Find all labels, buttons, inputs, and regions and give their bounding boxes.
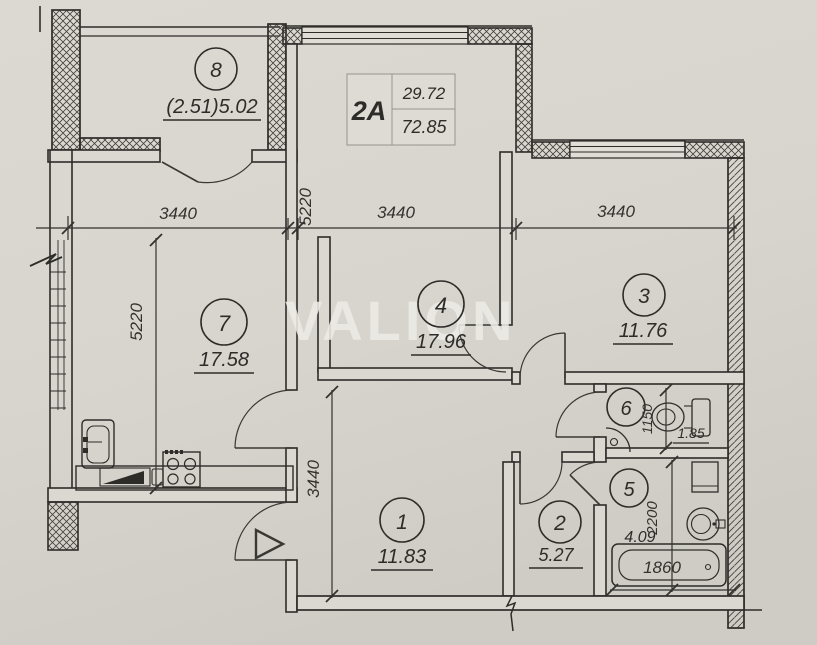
wc-left-wall-a (594, 384, 606, 392)
room4-number: 4 (435, 293, 447, 318)
wc-left-wall-b (594, 437, 606, 462)
room7-area: 17.58 (199, 349, 249, 371)
dim-top-left: 3440 (159, 204, 197, 223)
bottom-exterior-wall (297, 596, 744, 610)
room3-bottom-wall-a (512, 372, 520, 384)
wing-window (570, 141, 685, 158)
room6-number: 6 (620, 398, 632, 420)
room2-number: 2 (553, 512, 566, 535)
room4-bottom-wall (318, 368, 512, 380)
room7-number: 7 (218, 311, 231, 336)
room3-bottom-wall-b (565, 372, 744, 384)
room2-top-wall-a (512, 452, 520, 462)
room4-area: 17.96 (416, 331, 467, 353)
room7-top-wall-left (48, 150, 160, 162)
balcony-bottom-wall (80, 138, 160, 151)
dim-top-center: 3440 (377, 203, 415, 222)
room8-area: (2.51)5.02 (166, 96, 257, 118)
bottom-left-wall-stub (48, 502, 78, 550)
room2-area: 5.27 (538, 545, 574, 565)
floor-plan-scan: VALION 2A 29.72 72.85 8 (2.51)5.02 7 17.… (0, 0, 817, 645)
room3-number: 3 (638, 285, 650, 308)
unit-total-area: 72.85 (401, 117, 447, 137)
room3-area: 11.76 (619, 320, 668, 342)
room8-number: 8 (210, 59, 222, 82)
floor-plan-drawing: VALION 2A 29.72 72.85 8 (2.51)5.02 7 17.… (0, 0, 817, 645)
unit-label: 2A (351, 96, 387, 126)
upper-room-right-wall (516, 44, 532, 152)
room2-top-wall-b (562, 452, 594, 462)
dim-left-vertical: 5220 (127, 303, 146, 341)
wing-wall-hatch-left (532, 142, 570, 158)
room6-area: 1.85 (677, 425, 704, 441)
central-wall-lower (286, 560, 297, 612)
central-wall-mid (286, 448, 297, 502)
wc-bath-divider-wall (606, 448, 728, 458)
top-window (302, 27, 468, 44)
top-wall-hatch-right (468, 28, 532, 44)
room1-area: 11.83 (378, 546, 427, 568)
room1-number: 1 (396, 511, 408, 534)
unit-living-area: 29.72 (402, 84, 446, 103)
watermark: VALION (285, 289, 516, 352)
room5-number: 5 (623, 479, 635, 501)
dim-top-vertical: 5220 (296, 188, 315, 226)
balcony-left-wall (52, 10, 80, 150)
dim-hall-vertical: 3440 (304, 460, 323, 498)
room1-room2-wall (503, 462, 514, 596)
dim-bath-vertical: 2200 (644, 501, 661, 536)
dim-wc-vertical: 1150 (639, 404, 655, 434)
dim-bathtub-width: 1860 (643, 558, 681, 577)
dim-top-right: 3440 (597, 202, 635, 221)
wing-wall-hatch-right (685, 142, 744, 158)
unit-info-box: 2A 29.72 72.85 (347, 74, 455, 145)
top-wall-hatch-left (283, 28, 302, 44)
bath-left-wall (594, 505, 606, 596)
